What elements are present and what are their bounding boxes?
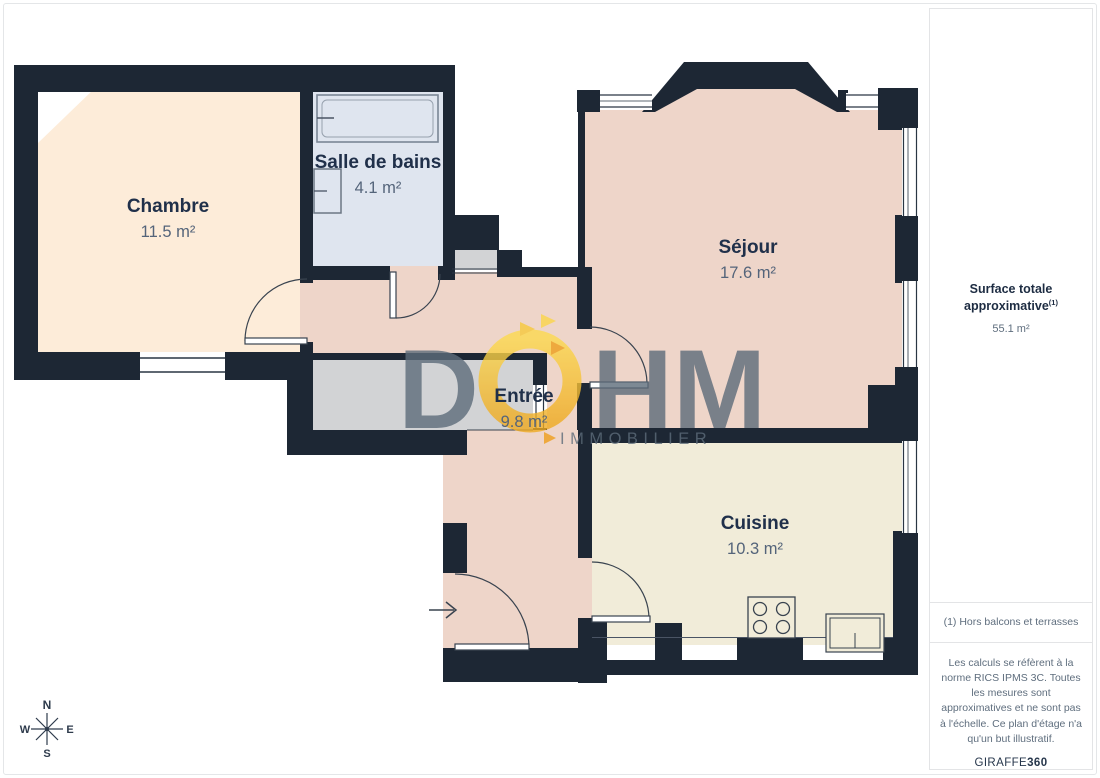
watermark-letter-d: D	[398, 327, 479, 452]
footnote-marker: (1)	[1049, 298, 1058, 307]
door-leaf-kitchen	[592, 616, 650, 622]
label-bedroom: Chambre	[127, 196, 209, 217]
watermark-subtitle: IMMOBILIER	[560, 430, 712, 448]
giraffe360-logo: GIRAFFE360	[939, 757, 1083, 769]
area-bedroom: 11.5 m²	[141, 223, 196, 241]
label-living: Séjour	[718, 237, 778, 258]
label-bathroom: Salle de bains	[315, 152, 442, 173]
sidebar-total-section: Surface totale approximative(1) 55.1 m²	[930, 9, 1092, 602]
compass-east: E	[66, 724, 73, 736]
disclaimer-text: Les calculs se réfèrent à la norme RICS …	[939, 656, 1083, 747]
door-leaf-bedroom	[245, 338, 307, 344]
floor-bedroom	[38, 88, 305, 352]
door-leaf-bathroom	[390, 272, 396, 318]
sidebar-legal-section: Les calculs se réfèrent à la norme RICS …	[930, 642, 1092, 769]
info-sidebar: Surface totale approximative(1) 55.1 m² …	[929, 8, 1093, 770]
window-niche-living-2	[893, 281, 903, 367]
floorplan-canvas: D HM IMMOBILIER Chambre 11.5 m² Salle de…	[0, 0, 1100, 778]
compass-west: W	[20, 724, 31, 736]
footnote-text: (1) Hors balcons et terrasses	[944, 616, 1079, 628]
floor-closet-small	[450, 248, 499, 270]
compass-rose	[31, 713, 63, 745]
window-niche-kitchen	[893, 441, 903, 533]
compass-south: S	[43, 748, 50, 760]
window-niche-living-1	[893, 128, 903, 216]
label-kitchen: Cuisine	[721, 513, 790, 534]
area-bathroom: 4.1 m²	[355, 179, 402, 197]
area-entrance: 9.8 m²	[501, 413, 548, 431]
door-leaf-entrance	[455, 644, 529, 650]
total-surface-label: Surface totale approximative(1)	[938, 281, 1084, 315]
label-entrance: Entrée	[494, 386, 553, 407]
area-kitchen: 10.3 m²	[727, 540, 783, 558]
compass-north: N	[43, 698, 52, 712]
sidebar-footnote: (1) Hors balcons et terrasses	[930, 602, 1092, 642]
area-living: 17.6 m²	[720, 264, 776, 282]
total-surface-value: 55.1 m²	[938, 323, 1084, 335]
